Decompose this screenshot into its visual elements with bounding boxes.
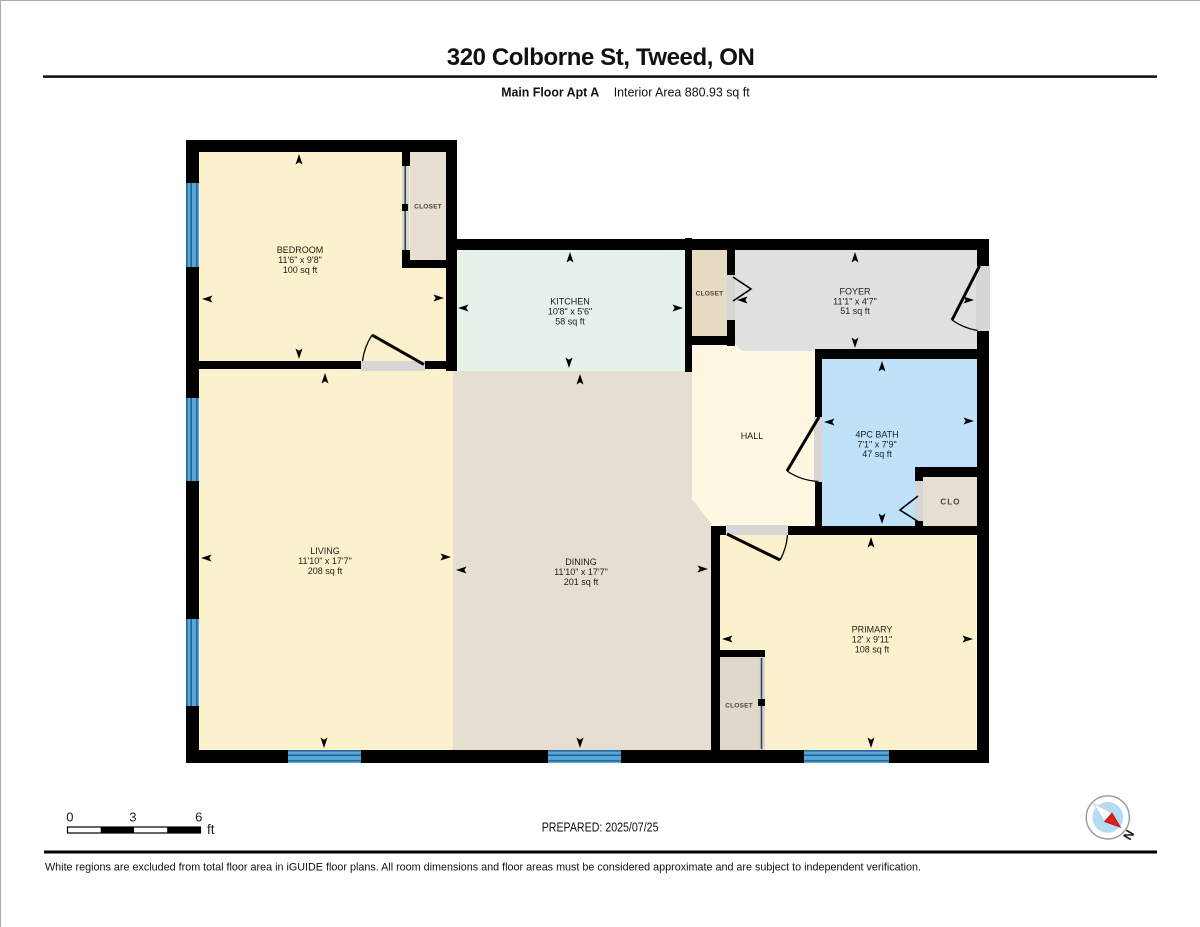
svg-text:47 sq ft: 47 sq ft xyxy=(862,449,892,459)
svg-text:11'10" x 17'7": 11'10" x 17'7" xyxy=(298,556,352,566)
svg-text:12' x 9'11": 12' x 9'11" xyxy=(852,635,893,645)
svg-text:DINING: DINING xyxy=(565,557,597,567)
svg-text:108 sq ft: 108 sq ft xyxy=(855,645,890,655)
svg-text:CLO: CLO xyxy=(940,498,960,507)
svg-text:100 sq ft: 100 sq ft xyxy=(283,265,318,275)
svg-text:11'1" x 4'7": 11'1" x 4'7" xyxy=(833,296,877,306)
svg-text:CLOSET: CLOSET xyxy=(414,204,442,211)
svg-text:51 sq ft: 51 sq ft xyxy=(840,306,870,316)
svg-text:CLOSET: CLOSET xyxy=(696,291,724,298)
svg-text:BEDROOM: BEDROOM xyxy=(277,245,324,255)
svg-text:58 sq ft: 58 sq ft xyxy=(555,316,585,326)
svg-text:HALL: HALL xyxy=(741,431,764,441)
svg-text:0: 0 xyxy=(66,810,73,825)
svg-text:320 Colborne St, Tweed, ON: 320 Colborne St, Tweed, ON xyxy=(447,44,755,71)
svg-text:Main Floor Apt A: Main Floor Apt A xyxy=(501,84,600,99)
svg-text:10'8" x 5'6": 10'8" x 5'6" xyxy=(548,307,592,317)
svg-text:7'1" x 7'9": 7'1" x 7'9" xyxy=(857,439,896,449)
svg-text:CLOSET: CLOSET xyxy=(725,703,753,710)
svg-text:11'6" x 9'8": 11'6" x 9'8" xyxy=(278,255,322,265)
svg-text:ft: ft xyxy=(207,822,215,837)
svg-text:White regions are excluded fro: White regions are excluded from total fl… xyxy=(45,861,921,873)
svg-text:PREPARED: 2025/07/25: PREPARED: 2025/07/25 xyxy=(542,819,659,834)
svg-text:4PC BATH: 4PC BATH xyxy=(855,429,898,439)
svg-text:3: 3 xyxy=(129,810,136,825)
svg-text:11'10" x 17'7": 11'10" x 17'7" xyxy=(554,567,608,577)
svg-text:FOYER: FOYER xyxy=(839,286,871,296)
svg-text:201 sq ft: 201 sq ft xyxy=(564,577,599,587)
svg-text:208 sq ft: 208 sq ft xyxy=(308,566,343,576)
svg-text:6: 6 xyxy=(195,810,202,825)
svg-text:PRIMARY: PRIMARY xyxy=(852,625,893,635)
svg-text:KITCHEN: KITCHEN xyxy=(550,296,590,306)
svg-text:LIVING: LIVING xyxy=(310,546,340,556)
svg-text:Interior Area 880.93 sq ft: Interior Area 880.93 sq ft xyxy=(614,84,750,99)
